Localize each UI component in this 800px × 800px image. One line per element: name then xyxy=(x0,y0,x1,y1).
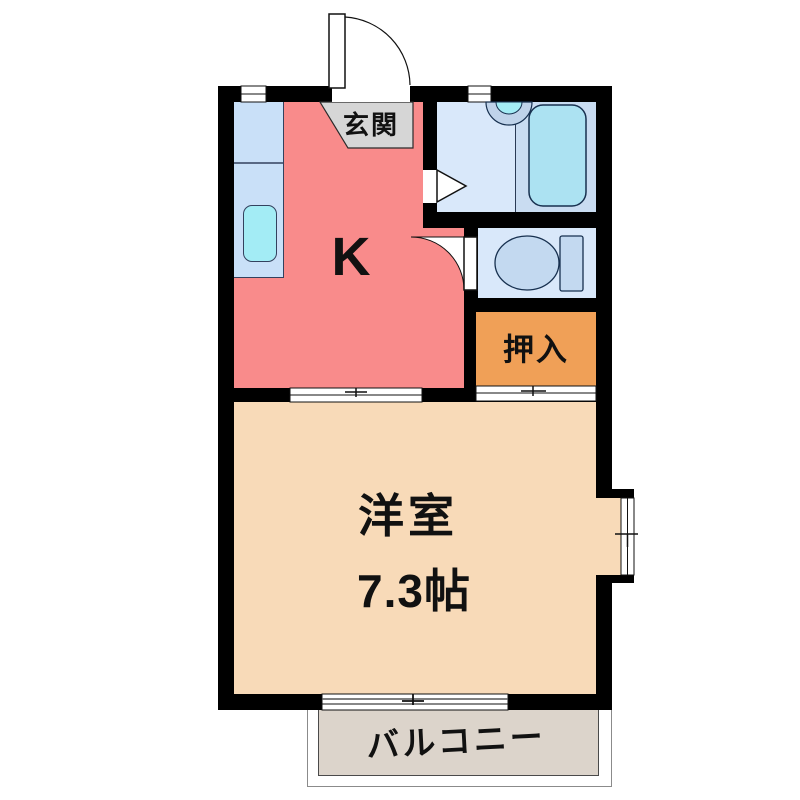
bathroom-tub-zone xyxy=(515,102,596,212)
entrance-door-leaf xyxy=(329,14,345,88)
kitchen-label: K xyxy=(332,230,371,284)
entrance-label: 玄関 xyxy=(343,112,399,138)
balcony-label: バルコニー xyxy=(366,720,547,762)
main-room-label: 洋室 xyxy=(358,493,458,539)
bay-window-floor xyxy=(596,498,622,575)
floor-plan: 玄関 K 押入 洋室 7.3帖 バルコニー xyxy=(0,0,800,800)
room-toilet xyxy=(478,228,596,298)
bay-window-wall-top xyxy=(612,489,634,498)
room-main xyxy=(234,402,596,694)
room-kitchen-extension xyxy=(423,228,464,388)
entrance-door-arc xyxy=(345,17,410,85)
main-room-size-label: 7.3帖 xyxy=(357,568,471,614)
kitchen-sink-icon xyxy=(243,205,277,262)
closet-label: 押入 xyxy=(503,335,569,366)
bay-window-wall-bottom xyxy=(612,574,634,583)
